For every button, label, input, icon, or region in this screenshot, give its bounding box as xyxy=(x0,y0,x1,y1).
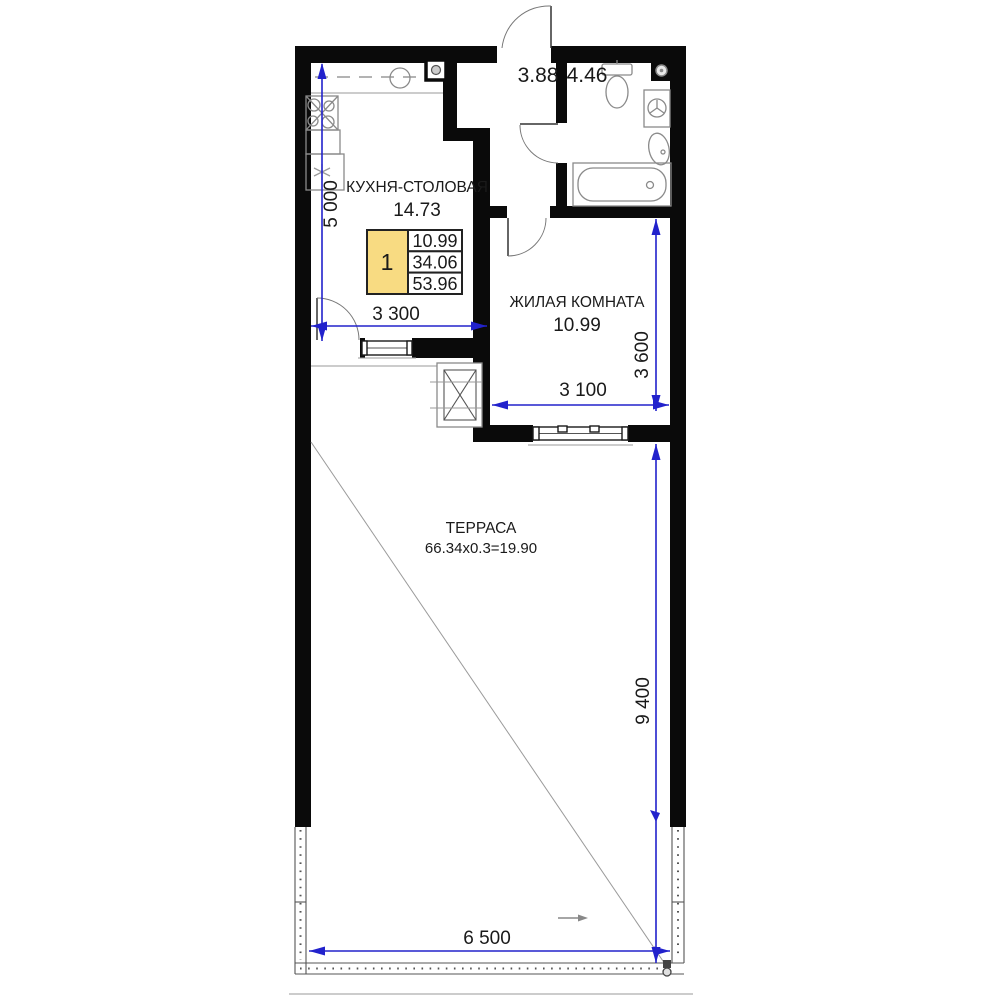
entrance-door xyxy=(502,6,551,48)
dimension-living-width-label: 3 100 xyxy=(559,380,607,401)
dimension-kitchen-width-label: 3 300 xyxy=(372,304,420,325)
drain-marker-icon xyxy=(663,960,671,976)
vent-box-right-icon xyxy=(651,60,672,81)
ventilation-shaft xyxy=(430,363,482,427)
dimension-living-height: 3 600 xyxy=(632,219,661,411)
floor-plan-page: 5 000 3 300 3 600 3 100 9 400 6 500 КУХН… xyxy=(0,0,1000,1000)
terrace-label: ТЕРРАСА xyxy=(446,520,517,537)
legend-apartment-area: 34.06 xyxy=(412,253,457,273)
washing-machine-icon xyxy=(644,90,670,127)
dimension-kitchen-height-label: 5 000 xyxy=(321,180,342,228)
living-window xyxy=(528,426,633,445)
terrace-direction-arrow xyxy=(558,915,588,922)
dimension-terrace-width: 6 500 xyxy=(309,928,670,956)
bathroom-area: 4.46 xyxy=(567,64,608,87)
vent-box-left-icon xyxy=(426,60,446,80)
dimension-kitchen-width: 3 300 xyxy=(311,304,487,331)
dimension-terrace-height-label: 9 400 xyxy=(633,677,654,725)
terrace-area-formula: 66.34x0.3=19.90 xyxy=(425,540,537,557)
dimension-terrace-width-label: 6 500 xyxy=(463,928,511,949)
kitchen-label: КУХНЯ-СТОЛОВАЯ xyxy=(346,179,488,196)
apartment-legend: 1 10.99 34.06 53.96 xyxy=(367,230,462,294)
dimension-terrace-height: 9 400 xyxy=(633,444,661,963)
legend-total-area: 53.96 xyxy=(412,274,457,294)
kitchen-sink-icon xyxy=(390,68,410,88)
bathtub-icon xyxy=(573,163,671,206)
legend-living-area: 10.99 xyxy=(412,231,457,251)
kitchen-cabinet xyxy=(306,130,340,154)
dimension-living-width: 3 100 xyxy=(492,380,669,410)
dimension-living-height-label: 3 600 xyxy=(632,331,653,379)
terrace-railing xyxy=(295,827,684,974)
hallway-area: 3.88 xyxy=(518,64,559,87)
kitchen-counter xyxy=(311,68,443,93)
legend-rooms-count: 1 xyxy=(381,249,394,275)
bathroom-sink-icon xyxy=(646,131,672,166)
living-room-door xyxy=(508,218,546,256)
living-room-area: 10.99 xyxy=(553,315,601,336)
kitchen-window xyxy=(358,341,416,358)
living-room-label: ЖИЛАЯ КОМНАТА xyxy=(510,294,646,311)
kitchen-area: 14.73 xyxy=(393,200,441,221)
bathroom-door xyxy=(520,124,558,163)
floor-plan-svg: 5 000 3 300 3 600 3 100 9 400 6 500 КУХН… xyxy=(0,0,1000,1000)
